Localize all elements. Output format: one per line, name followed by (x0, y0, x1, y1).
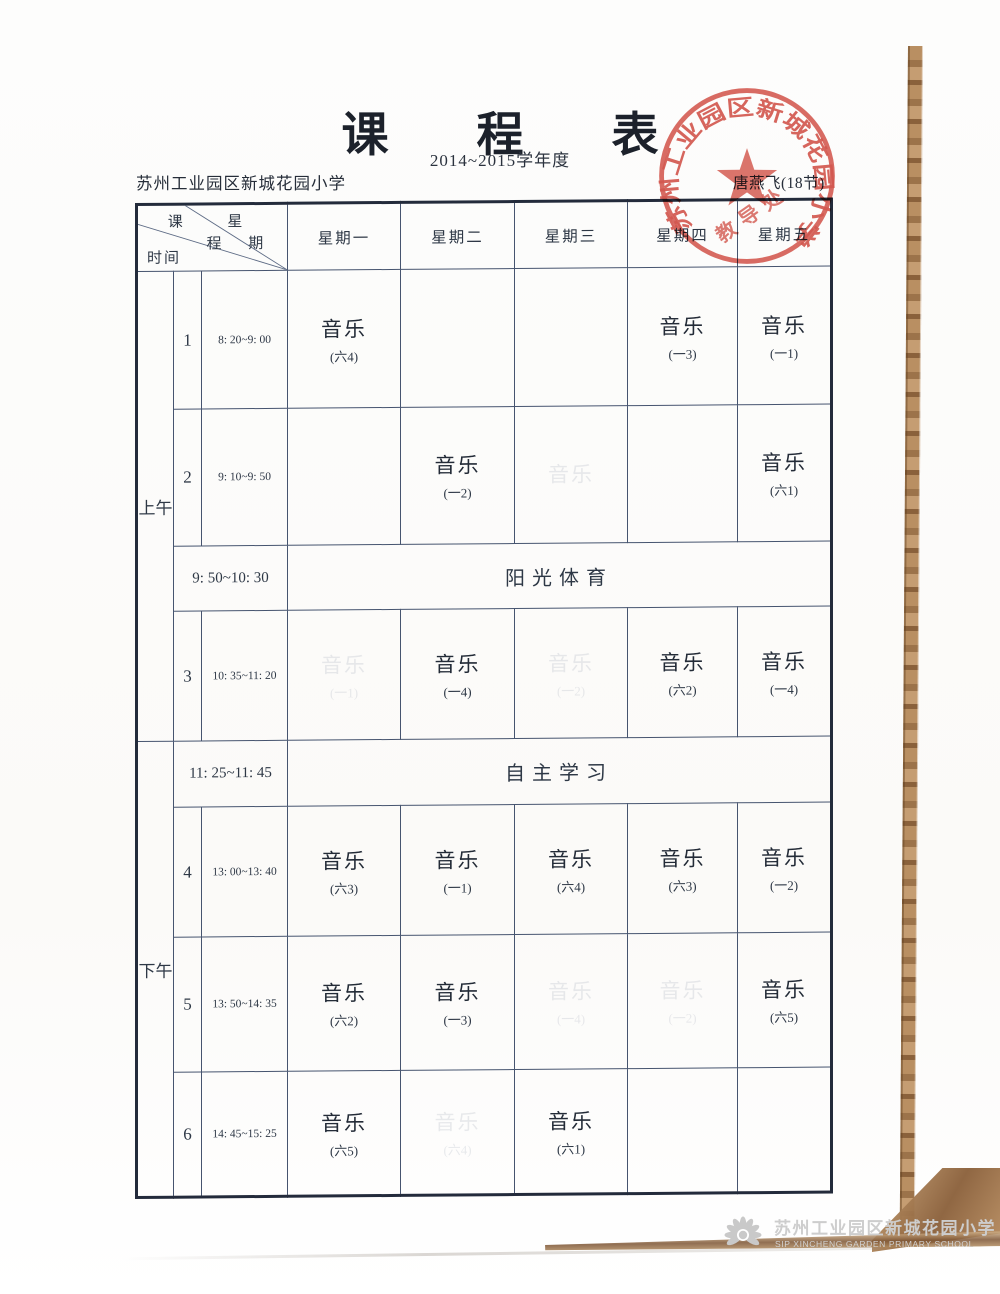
period-number: 6 (174, 1072, 202, 1197)
schedule-cell: 音乐(六1) (738, 404, 832, 542)
day-header-monday: 星期一 (288, 202, 401, 270)
period-time: 9: 10~9: 50 (202, 408, 288, 546)
corner-header-cell: 课 程 星 期 时间 (137, 203, 288, 271)
schedule-cell: 音乐(六2) (288, 935, 401, 1071)
session-label-morning: 上午 (137, 271, 174, 741)
paper-bottom-edge-shadow (120, 1247, 880, 1261)
schedule-cell: 音乐(六5) (288, 1070, 401, 1196)
day-header-tuesday: 星期二 (401, 202, 515, 270)
period-time: 13: 00~13: 40 (202, 806, 288, 937)
session-label-afternoon: 下午 (137, 741, 174, 1197)
schedule-cell-empty (738, 1067, 832, 1193)
schedule-cell: 音乐(一3) (628, 267, 738, 406)
corner-label-course-char2: 程 (207, 232, 222, 253)
schedule-cell-empty (628, 405, 738, 543)
period-number: 3 (174, 611, 202, 741)
period-time: 10: 35~11: 20 (202, 610, 288, 741)
corner-label-week-char2: 期 (248, 232, 263, 253)
teacher-name: 唐燕飞(18节) (733, 171, 825, 193)
schedule-cell: 音乐(六1) (515, 1069, 628, 1195)
schedule-cell-empty (288, 407, 401, 545)
corner-label-time: 时间 (147, 247, 181, 268)
session-afternoon-text: 下午 (138, 956, 173, 981)
period-number: 1 (174, 271, 202, 409)
period-time: 13: 50~14: 35 (202, 936, 288, 1072)
schedule-cell-erased: 音乐(六4) (401, 1070, 515, 1196)
corner-label-course-char1: 课 (168, 211, 183, 232)
schedule-cell-erased: 音乐(一2) (515, 608, 628, 739)
schedule-cell: 音乐(一1) (738, 266, 832, 405)
schedule-cell-erased: 音乐(一4) (515, 934, 628, 1070)
photographed-timetable-sheet: 课程表 2014~2015学年度 苏州工业园区新城花园小学 唐燕飞(18节) 课… (0, 0, 1000, 1294)
school-name: 苏州工业园区新城花园小学 (136, 170, 346, 194)
flower-logo-icon (722, 1212, 764, 1254)
activity-time: 9: 50~10: 30 (174, 545, 288, 611)
schedule-cell: 音乐(一2) (401, 407, 515, 545)
session-morning-text: 上午 (138, 494, 173, 519)
schedule-cell: 音乐(六4) (515, 804, 628, 935)
schedule-cell: 音乐(六3) (628, 803, 738, 934)
period-time: 14: 45~15: 25 (202, 1071, 288, 1197)
corner-label-week-char1: 星 (227, 210, 242, 231)
schedule-cell: 音乐(六4) (288, 269, 401, 408)
schedule-cell: 音乐(一1) (401, 805, 515, 936)
activity-label-self-study: 自主学习 (288, 736, 832, 806)
watermark-school-name-cn: 苏州工业园区新城花园小学 (774, 1214, 996, 1239)
schedule-cell-empty (401, 269, 515, 408)
day-header-friday: 星期五 (738, 199, 832, 267)
desk-wood-edge-right (900, 46, 923, 1238)
timetable: 课 程 星 期 时间 星期一 星期二 星期三 星期四 星期五 上午 1 8: 2… (135, 198, 833, 1199)
schedule-cell-erased: 音乐(一2) (628, 933, 738, 1069)
period-number: 4 (174, 807, 202, 937)
schedule-cell-empty (515, 268, 628, 407)
day-header-wednesday: 星期三 (515, 201, 628, 269)
schedule-cell: 音乐(六3) (288, 805, 401, 936)
activity-time: 11: 25~11: 45 (174, 740, 288, 807)
school-year-subtitle: 2014~2015学年度 (0, 146, 1000, 171)
period-number: 2 (174, 409, 202, 546)
schedule-cell: 音乐(一4) (401, 609, 515, 740)
day-header-thursday: 星期四 (628, 200, 738, 268)
schedule-cell: 音乐(一3) (401, 935, 515, 1071)
schedule-cell: 音乐(一4) (738, 606, 832, 737)
schedule-cell-erased: 音乐(一1) (288, 609, 401, 740)
schedule-cell: 音乐(六5) (738, 932, 832, 1068)
schedule-cell: 音乐(六2) (628, 607, 738, 738)
schedule-cell-empty (628, 1068, 738, 1194)
period-time: 8: 20~9: 00 (202, 270, 288, 409)
activity-label-sunshine-sports: 阳光体育 (288, 541, 832, 610)
watermark-school-name-en: SIP XINCHENG GARDEN PRIMARY SCHOOL (775, 1239, 974, 1249)
schedule-cell: 音乐(一2) (738, 802, 832, 933)
schedule-cell-erased: 音乐 (515, 406, 628, 544)
period-number: 5 (174, 937, 202, 1072)
